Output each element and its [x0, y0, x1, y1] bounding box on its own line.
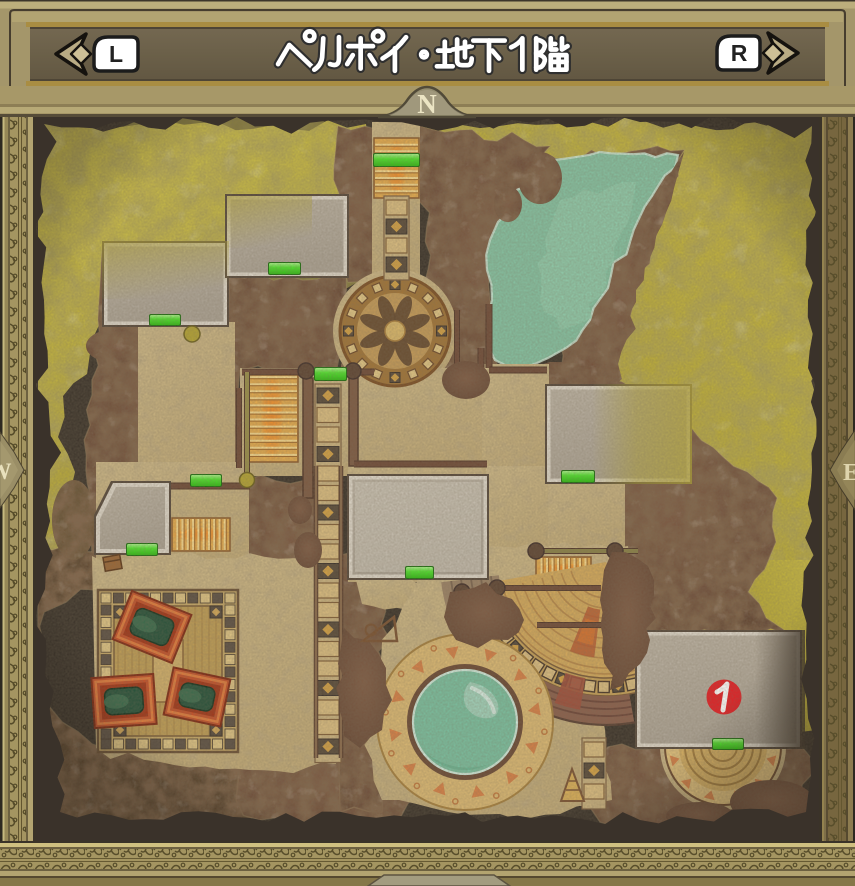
svg-text:L: L: [109, 41, 123, 67]
svg-text:N: N: [417, 89, 437, 119]
svg-text:E: E: [843, 460, 855, 486]
svg-text:R: R: [731, 40, 748, 66]
svg-text:W: W: [0, 459, 12, 484]
